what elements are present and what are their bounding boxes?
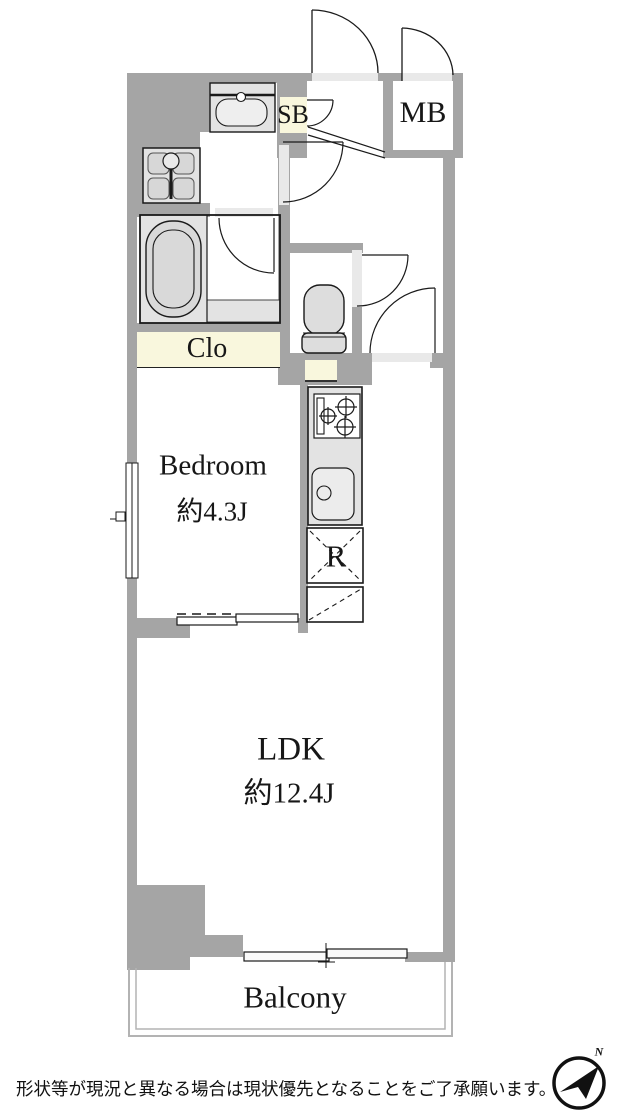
bathtub [146, 221, 201, 317]
bedroom-sliding-door [177, 614, 298, 625]
kitchen-cabinet [305, 360, 337, 382]
wall-segment [352, 307, 362, 355]
bedroom-bottom-wall [127, 618, 190, 638]
wall-segment [127, 158, 137, 463]
kitchen-counter [308, 387, 362, 525]
bathroom [140, 215, 280, 323]
bedroom-size-label: 約4.3J [176, 499, 247, 526]
wall-segment [127, 957, 190, 970]
compass-icon [554, 1058, 604, 1108]
washroom-opening [279, 145, 289, 205]
wall-segment [127, 885, 205, 957]
wall-segment [200, 73, 280, 83]
toilet [302, 285, 346, 353]
stove-burners [319, 396, 357, 438]
compass-north-label: N [595, 1045, 604, 1060]
closet-label: Clo [187, 335, 227, 363]
wall-segment [205, 935, 243, 957]
balcony-label: Balcony [243, 982, 346, 1013]
ldk-door-arc [370, 288, 435, 353]
ldk-label: LDK [257, 734, 325, 767]
wall-segment [405, 952, 443, 962]
toilet-opening [352, 250, 362, 307]
bath-opening [215, 208, 273, 217]
entrance-opening [312, 73, 378, 81]
right-outer-wall [443, 158, 455, 962]
floor-plan-page: SB MB Clo Bedroom 約4.3J R LDK 約12.4J Bal… [0, 0, 618, 1117]
entrance-door-arc [312, 10, 378, 73]
stove [314, 394, 360, 438]
kitchen-sink [312, 468, 354, 520]
bedroom-window [110, 463, 138, 578]
washbasin [210, 83, 275, 132]
balcony-window [244, 943, 407, 968]
wall-segment [200, 83, 210, 132]
disclaimer-text: 形状等が現況と異なる場合は現状優先となることをご了承願います。 [16, 1076, 556, 1101]
meter-box-opening [402, 73, 452, 81]
bath-door-arc [219, 218, 274, 273]
meter-box-label: MB [400, 98, 447, 128]
storage-space [307, 587, 363, 622]
kitchen-left-wall [300, 385, 308, 633]
wall-segment [127, 73, 200, 158]
fixtures-layer [0, 0, 618, 1117]
bedroom-label: Bedroom [159, 452, 267, 481]
refrigerator-label: R [326, 541, 347, 572]
ldk-threshold-opening [372, 353, 432, 362]
ldk-size-label: 約12.4J [243, 780, 334, 809]
toilet-door-arc [357, 255, 408, 306]
wall-segment [137, 203, 210, 217]
shoe-box-door-arc [307, 100, 333, 126]
entrance-step [308, 127, 385, 158]
shoe-box-label: SB [277, 102, 309, 128]
